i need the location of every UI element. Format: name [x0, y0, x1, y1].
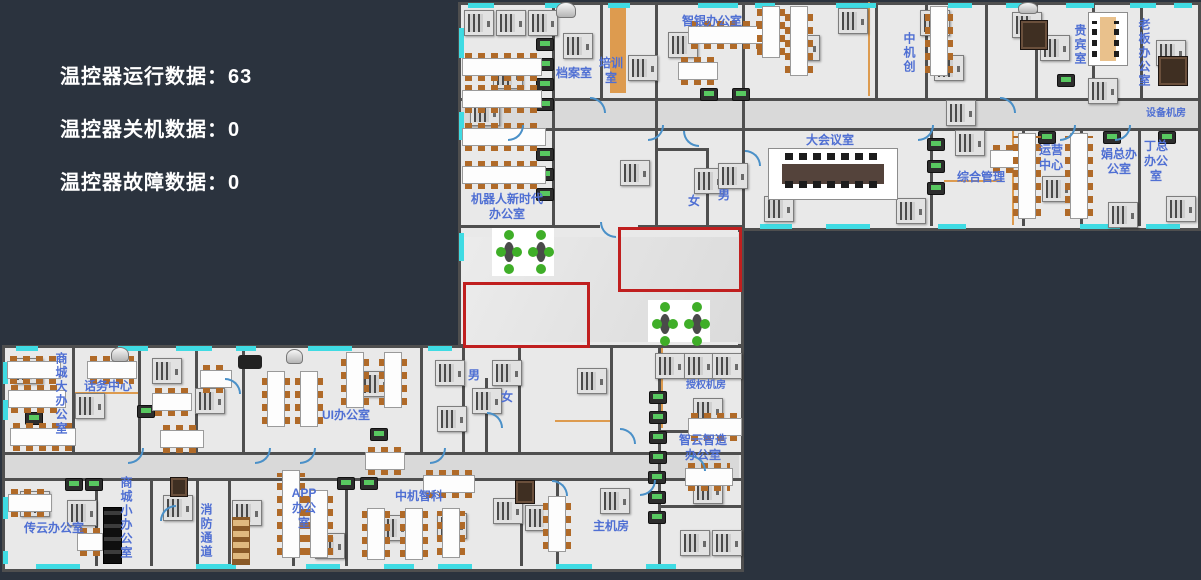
stairwell-icon [286, 349, 303, 364]
room-label-ding: 丁总办公室 [1142, 139, 1170, 184]
ac-unit-icon[interactable] [435, 360, 465, 386]
window-icon [438, 564, 472, 569]
window-icon [308, 346, 352, 351]
cabinet-icon [1158, 56, 1188, 86]
desk-icon [790, 6, 808, 76]
wall [985, 2, 988, 98]
window-icon [698, 3, 738, 8]
desk-icon [8, 494, 52, 512]
cabinet-icon [515, 480, 535, 504]
window-icon [760, 224, 792, 229]
alert-zone [463, 282, 590, 348]
room-label-equipment: 设备机房 [1146, 108, 1186, 121]
wall [658, 505, 744, 508]
ac-unit-icon[interactable] [577, 368, 607, 394]
ac-unit-icon[interactable] [1108, 202, 1138, 228]
ac-unit-icon[interactable] [955, 130, 985, 156]
wall [655, 128, 658, 226]
ac-unit-icon[interactable] [620, 160, 650, 186]
thermostat-display-icon[interactable] [732, 88, 750, 101]
partition-line [868, 2, 870, 96]
stairwell-icon [556, 2, 576, 18]
wall [150, 478, 153, 566]
thermostat-display-icon[interactable] [648, 491, 666, 504]
cabinet-icon [1020, 20, 1048, 50]
desk-icon [87, 361, 137, 379]
thermostat-display-icon[interactable] [648, 511, 666, 524]
ac-unit-icon[interactable] [152, 358, 182, 384]
thermostat-display-icon[interactable] [65, 478, 83, 491]
ac-unit-icon[interactable] [628, 55, 658, 81]
meeting-table-icon [648, 300, 710, 342]
ac-unit-icon[interactable] [712, 353, 742, 379]
window-icon [1130, 3, 1156, 8]
floorplan: 档案室 培训室 智银办公室 中机创 贵宾室 老板办公室 设备机房 大会议室 综合… [0, 0, 1201, 580]
ac-unit-icon[interactable] [528, 10, 558, 36]
room-label-zhiyin: 智银办公室 [682, 14, 742, 29]
desk-icon [462, 58, 542, 76]
ac-unit-icon[interactable] [896, 198, 926, 224]
ac-unit-icon[interactable] [75, 393, 105, 419]
desk-icon [930, 6, 948, 76]
desk-icon [300, 371, 318, 427]
room-label-male-lower: 男 [468, 368, 480, 383]
conference-table-icon [768, 148, 898, 200]
desk-icon [678, 62, 718, 80]
ac-unit-icon[interactable] [712, 530, 742, 556]
room-label-chuanyun: 传云办公室 [24, 521, 84, 536]
window-icon [428, 346, 452, 351]
thermostat-display-icon[interactable] [1057, 74, 1075, 87]
desk-icon [762, 6, 780, 58]
room-label-call-center: 话务中心 [84, 379, 132, 394]
window-icon [646, 564, 676, 569]
desk-icon [160, 430, 204, 448]
desk-icon [462, 128, 546, 146]
room-label-main-server: 主机房 [593, 519, 629, 534]
room-label-zhongji-chuang: 中机创 [901, 32, 916, 74]
ac-unit-icon[interactable] [718, 163, 748, 189]
window-icon [948, 3, 972, 8]
room-label-conference: 大会议室 [806, 133, 854, 148]
window-icon [306, 564, 340, 569]
room-label-male-upper: 男 [718, 188, 730, 203]
room-label-archive: 档案室 [556, 66, 592, 81]
desk-icon [384, 352, 402, 408]
room-label-mall-small: 商城小办公室 [118, 476, 133, 560]
thermostat-display-icon[interactable] [649, 431, 667, 444]
thermostat-display-icon[interactable] [370, 428, 388, 441]
window-icon [459, 233, 464, 261]
thermostat-display-icon[interactable] [649, 411, 667, 424]
ac-unit-icon[interactable] [1166, 196, 1196, 222]
thermostat-display-icon[interactable] [700, 88, 718, 101]
wall [345, 478, 348, 566]
ac-unit-icon[interactable] [655, 353, 685, 379]
ac-unit-icon[interactable] [496, 10, 526, 36]
shelf-rack-icon [232, 517, 250, 565]
desk-icon [442, 508, 460, 558]
window-icon [3, 551, 8, 564]
room-label-general-management: 综合管理 [957, 170, 1005, 185]
window-icon [468, 3, 494, 8]
wall [875, 2, 878, 98]
window-icon [608, 3, 630, 8]
room-label-female-upper: 女 [688, 194, 700, 209]
ac-unit-icon[interactable] [1088, 78, 1118, 104]
stairwell-icon [1018, 2, 1038, 14]
desk-icon [367, 508, 385, 560]
thermostat-display-icon[interactable] [85, 478, 103, 491]
window-icon [236, 346, 256, 351]
ac-unit-icon[interactable] [838, 8, 868, 34]
wall [420, 345, 423, 452]
room-label-zhiyun: 智云智造办公室 [676, 433, 730, 463]
window-icon [1146, 224, 1180, 229]
room-label-fire-passage: 消防通道 [198, 503, 213, 559]
desk-icon [548, 496, 566, 552]
ac-unit-icon[interactable] [946, 100, 976, 126]
cabinet-icon [170, 477, 188, 497]
ac-unit-icon[interactable] [563, 33, 593, 59]
ac-unit-icon[interactable] [492, 360, 522, 386]
thermostat-display-icon[interactable] [927, 160, 945, 173]
room-label-boss: 老板办公室 [1136, 18, 1151, 88]
thermostat-display-icon[interactable] [649, 391, 667, 404]
desk-icon [365, 452, 405, 470]
room-label-juan: 娟总办公室 [1096, 147, 1142, 177]
thermostat-monitor-screen: 温控器运行数据：63 温控器关机数据：0 温控器故障数据：0 档案室 培训室 智… [0, 0, 1201, 580]
room-label-auth-room: 授权机房 [686, 380, 726, 393]
alert-zone [618, 227, 742, 292]
room-label-ui-office: UI办公室 [322, 408, 370, 423]
room-label-robot: 机器人新时代办公室 [466, 192, 548, 222]
thermostat-display-icon[interactable] [337, 477, 355, 490]
vip-table-icon [1088, 12, 1128, 66]
desk-icon [462, 166, 546, 184]
thermostat-display-icon[interactable] [649, 451, 667, 464]
meeting-table-icon [492, 228, 554, 276]
ac-unit-icon[interactable] [464, 10, 494, 36]
wall [1138, 128, 1141, 226]
thermostat-display-icon[interactable] [927, 182, 945, 195]
desk-icon [1070, 133, 1088, 219]
ac-unit-icon[interactable] [680, 530, 710, 556]
room-label-female-lower: 女 [501, 390, 513, 405]
desk-icon [1018, 133, 1036, 219]
desk-icon [462, 90, 542, 108]
room-label-vip: 贵宾室 [1072, 24, 1087, 66]
room-label-app-office: APP办公室 [291, 486, 317, 531]
room-label-operations: 运营中心 [1036, 143, 1066, 173]
room-label-mall-big: 商城大办公室 [53, 352, 68, 436]
window-icon [1174, 3, 1192, 8]
ac-unit-icon[interactable] [437, 406, 467, 432]
fixture-icon [238, 355, 262, 369]
wall [610, 345, 613, 452]
window-icon [384, 564, 414, 569]
window-icon [16, 346, 38, 351]
wall [655, 148, 709, 151]
desk-icon [405, 508, 423, 560]
window-icon [36, 564, 80, 569]
wall [228, 478, 231, 566]
window-icon [938, 224, 966, 229]
desk-icon [267, 371, 285, 427]
window-icon [176, 346, 212, 351]
window-icon [556, 564, 592, 569]
room-label-training: 培训室 [597, 56, 625, 86]
partition-line [555, 420, 610, 422]
thermostat-display-icon[interactable] [360, 477, 378, 490]
window-icon [196, 564, 236, 569]
desk-icon [152, 393, 192, 411]
room-label-zhongji-zhike: 中机智科 [395, 489, 443, 504]
desk-icon [346, 352, 364, 408]
thermostat-display-icon[interactable] [536, 38, 554, 51]
ac-unit-icon[interactable] [684, 353, 714, 379]
thermostat-display-icon[interactable] [927, 138, 945, 151]
upper-corridor [461, 101, 1198, 128]
ac-unit-icon[interactable] [472, 388, 502, 414]
window-icon [1066, 3, 1094, 8]
stairwell-icon [111, 347, 129, 362]
wall [138, 345, 141, 452]
window-icon [826, 224, 870, 229]
ac-unit-icon[interactable] [600, 488, 630, 514]
